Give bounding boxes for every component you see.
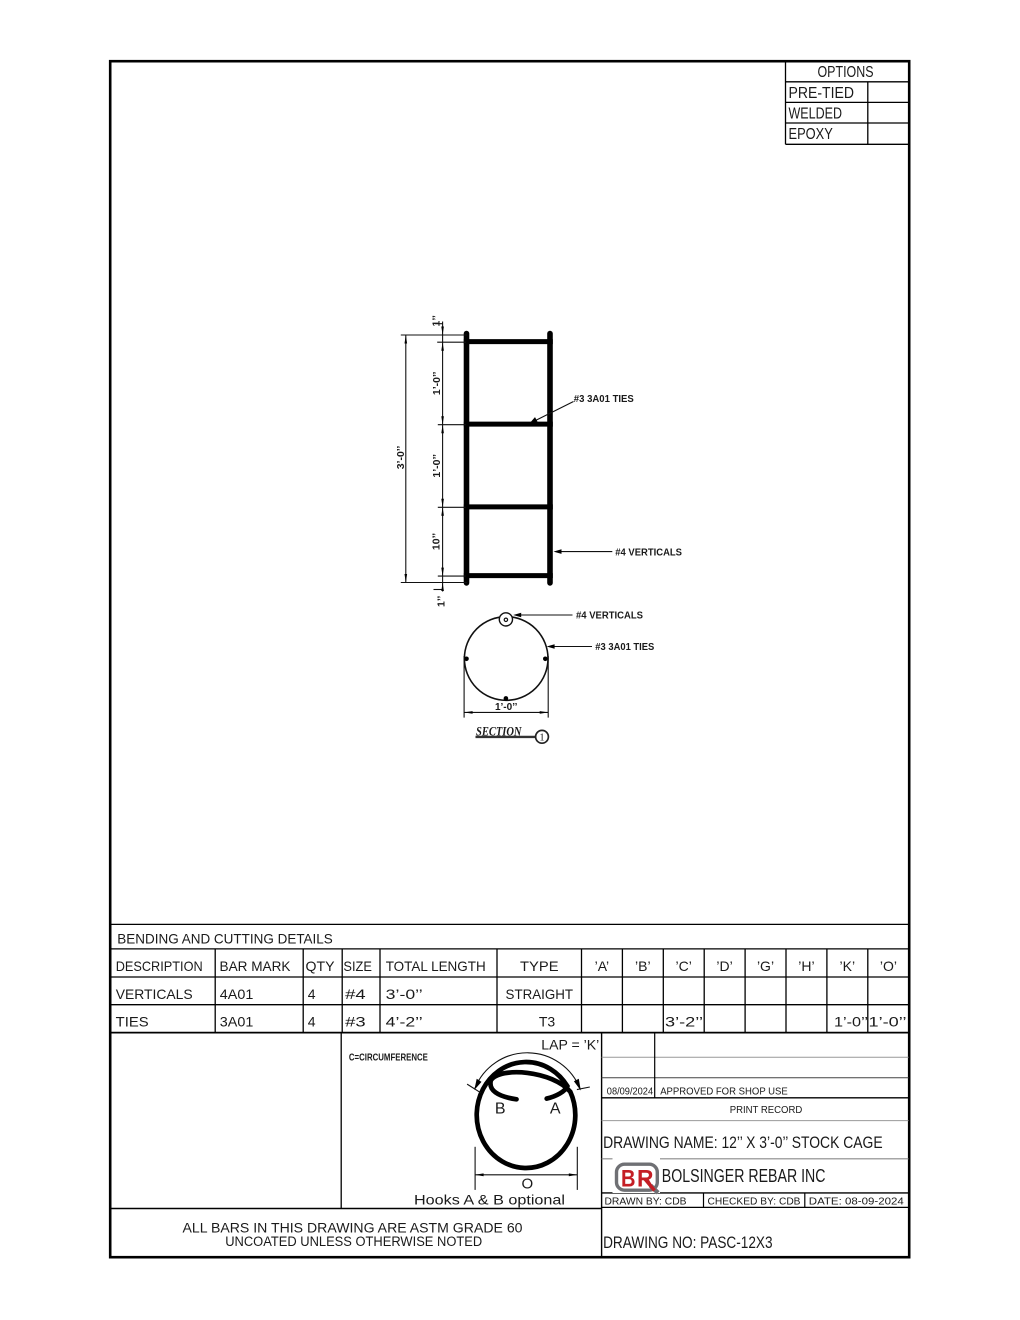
svg-text:TOTAL LENGTH: TOTAL LENGTH bbox=[386, 958, 486, 974]
svg-text:OPTIONS: OPTIONS bbox=[818, 64, 874, 81]
svg-text:1: 1 bbox=[539, 733, 544, 744]
svg-text:1’-0’’: 1’-0’’ bbox=[431, 371, 443, 395]
svg-text:’G’: ’G’ bbox=[757, 958, 774, 974]
svg-text:#3 3A01 TIES: #3 3A01 TIES bbox=[595, 641, 654, 653]
svg-text:DRAWN BY: CDB: DRAWN BY: CDB bbox=[605, 1196, 687, 1207]
svg-text:BENDING AND CUTTING DETAILS: BENDING AND CUTTING DETAILS bbox=[117, 930, 332, 946]
svg-text:DRAWING NAME: 12’’ X 3’-0’’ ST: DRAWING NAME: 12’’ X 3’-0’’ STOCK CAGE bbox=[603, 1134, 883, 1152]
svg-text:4: 4 bbox=[308, 1014, 316, 1030]
svg-text:WELDED: WELDED bbox=[789, 106, 843, 123]
svg-text:DRAWING NO: PASC-12X3: DRAWING NO: PASC-12X3 bbox=[603, 1234, 773, 1252]
svg-text:DESCRIPTION: DESCRIPTION bbox=[116, 958, 203, 974]
svg-text:PRE-TIED: PRE-TIED bbox=[789, 85, 855, 102]
svg-text:#3 3A01 TIES: #3 3A01 TIES bbox=[574, 393, 634, 405]
svg-text:08/09/2024: 08/09/2024 bbox=[607, 1086, 654, 1097]
svg-text:1’-0’’: 1’-0’’ bbox=[495, 701, 518, 713]
svg-text:#4 VERTICALS: #4 VERTICALS bbox=[615, 546, 682, 558]
svg-text:PRINT RECORD: PRINT RECORD bbox=[730, 1104, 803, 1116]
svg-text:EPOXY: EPOXY bbox=[789, 126, 834, 143]
svg-text:QTY: QTY bbox=[306, 958, 336, 974]
svg-text:1’-0’’: 1’-0’’ bbox=[869, 1014, 907, 1030]
svg-text:3’-0’’: 3’-0’’ bbox=[395, 446, 407, 470]
svg-text:BOLSINGER REBAR INC: BOLSINGER REBAR INC bbox=[662, 1165, 826, 1186]
svg-text:3’-0’’: 3’-0’’ bbox=[386, 986, 423, 1002]
svg-text:’A’: ’A’ bbox=[595, 958, 610, 974]
svg-text:3A01: 3A01 bbox=[220, 1014, 254, 1030]
svg-text:’K’: ’K’ bbox=[840, 958, 856, 974]
svg-text:UNCOATED UNLESS OTHERWISE NOTE: UNCOATED UNLESS OTHERWISE NOTED bbox=[225, 1234, 482, 1249]
svg-text:4’-2’’: 4’-2’’ bbox=[386, 1014, 423, 1030]
svg-text:3’-2’’: 3’-2’’ bbox=[665, 1014, 703, 1030]
svg-text:STRAIGHT: STRAIGHT bbox=[506, 986, 574, 1002]
svg-text:’D’: ’D’ bbox=[716, 958, 732, 974]
svg-text:APPROVED FOR SHOP USE: APPROVED FOR SHOP USE bbox=[660, 1086, 788, 1097]
svg-text:1’’: 1’’ bbox=[435, 596, 447, 607]
svg-text:#4: #4 bbox=[345, 986, 366, 1002]
svg-text:Hooks A & B optional: Hooks A & B optional bbox=[414, 1193, 565, 1208]
svg-text:’H’: ’H’ bbox=[798, 958, 814, 974]
svg-text:CHECKED BY: CDB: CHECKED BY: CDB bbox=[708, 1196, 801, 1207]
svg-text:#4 VERTICALS: #4 VERTICALS bbox=[576, 610, 643, 622]
svg-text:’O’: ’O’ bbox=[880, 958, 897, 974]
svg-text:T3: T3 bbox=[539, 1014, 556, 1030]
svg-text:B: B bbox=[495, 1100, 506, 1117]
svg-text:BAR MARK: BAR MARK bbox=[220, 958, 292, 974]
svg-text:A: A bbox=[550, 1100, 561, 1117]
svg-text:10’’: 10’’ bbox=[430, 533, 442, 550]
svg-text:B: B bbox=[621, 1165, 636, 1192]
svg-text:O: O bbox=[521, 1176, 533, 1193]
svg-text:LAP = ’K’: LAP = ’K’ bbox=[541, 1038, 599, 1053]
svg-text:’C’: ’C’ bbox=[676, 958, 692, 974]
svg-text:1’’: 1’’ bbox=[430, 315, 442, 326]
svg-text:TYPE: TYPE bbox=[520, 958, 559, 974]
svg-text:1’-0’’: 1’-0’’ bbox=[431, 454, 443, 478]
svg-text:SIZE: SIZE bbox=[343, 958, 372, 974]
svg-text:TIES: TIES bbox=[116, 1014, 149, 1030]
svg-text:’B’: ’B’ bbox=[635, 958, 651, 974]
svg-text:C=CIRCUMFERENCE: C=CIRCUMFERENCE bbox=[349, 1053, 428, 1064]
svg-text:4A01: 4A01 bbox=[220, 986, 254, 1002]
svg-text:DATE: 08-09-2024: DATE: 08-09-2024 bbox=[809, 1196, 904, 1207]
svg-text:1’-0’’: 1’-0’’ bbox=[834, 1014, 868, 1030]
svg-text:VERTICALS: VERTICALS bbox=[116, 986, 193, 1002]
svg-text:#3: #3 bbox=[345, 1014, 366, 1030]
svg-text:4: 4 bbox=[308, 986, 316, 1002]
